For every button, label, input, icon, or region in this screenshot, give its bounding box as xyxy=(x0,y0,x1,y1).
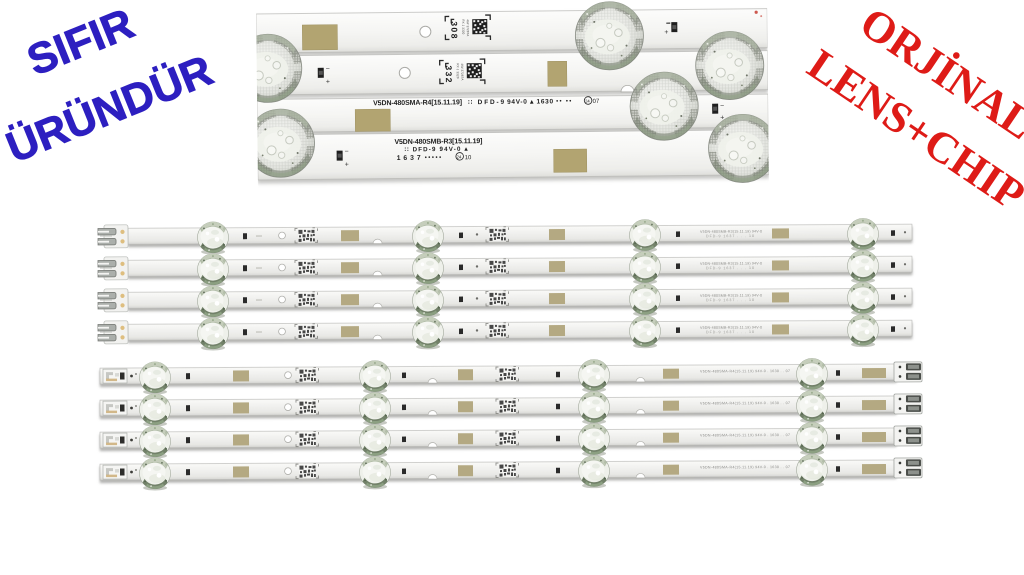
svg-text:−: − xyxy=(720,103,724,110)
svg-text:24: 24 xyxy=(457,154,462,159)
svg-text:+: + xyxy=(345,162,349,169)
svg-text:−: − xyxy=(326,66,330,73)
svg-text:•• ••: •• •• xyxy=(556,99,573,105)
svg-text:332: 332 xyxy=(444,65,454,82)
svg-text:24: 24 xyxy=(585,98,590,103)
svg-text:07: 07 xyxy=(593,99,600,105)
svg-text:+: + xyxy=(326,79,330,86)
svg-text:•••••: ••••• xyxy=(425,155,443,161)
svg-text:94V-0 ▴ 1630: 94V-0 ▴ 1630 xyxy=(507,98,553,105)
svg-text:308: 308 xyxy=(449,21,459,38)
svg-text:−: − xyxy=(345,149,349,156)
svg-text:10: 10 xyxy=(465,155,472,161)
svg-text:SIFIR: SIFIR xyxy=(21,0,141,85)
svg-text:V5DN-480SMB-R3[15.11.19]: V5DN-480SMB-R3[15.11.19] xyxy=(394,138,482,146)
svg-text:+: + xyxy=(664,29,668,36)
svg-text:V5DN-480SMA-R4[15.11.19]: V5DN-480SMA-R4[15.11.19] xyxy=(373,99,462,107)
